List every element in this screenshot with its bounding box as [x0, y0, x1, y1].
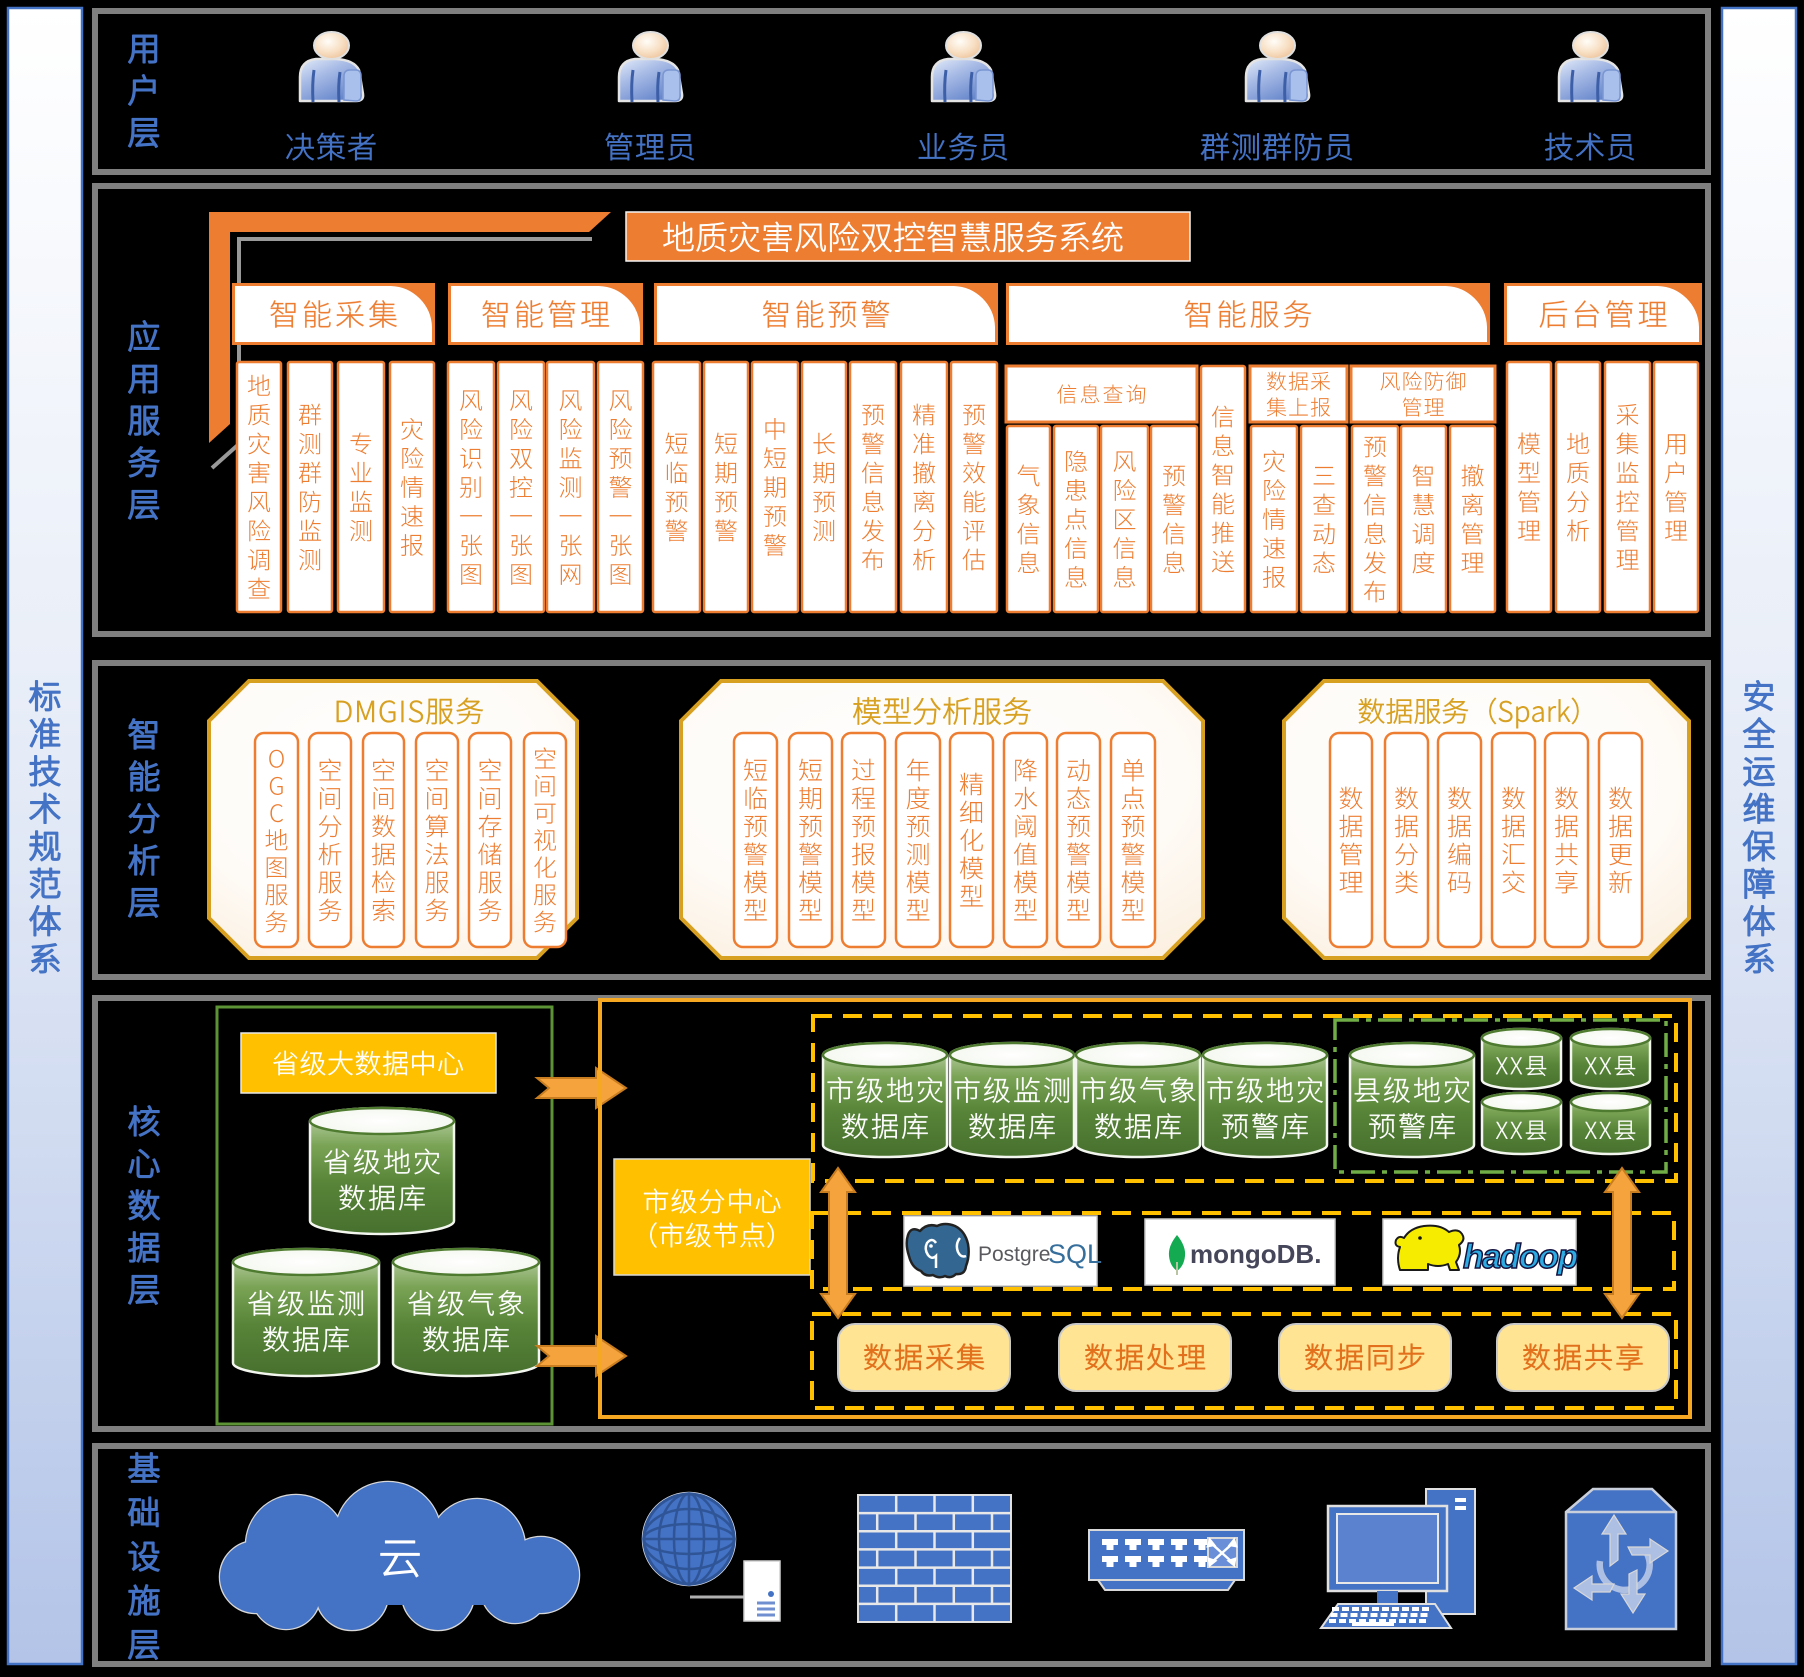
svg-text:SQL: SQL: [1048, 1239, 1102, 1269]
svg-text:hadoop: hadoop: [1463, 1238, 1577, 1276]
svg-text:mongoDB.: mongoDB.: [1190, 1239, 1321, 1269]
svg-text:Postgre: Postgre: [978, 1243, 1050, 1266]
